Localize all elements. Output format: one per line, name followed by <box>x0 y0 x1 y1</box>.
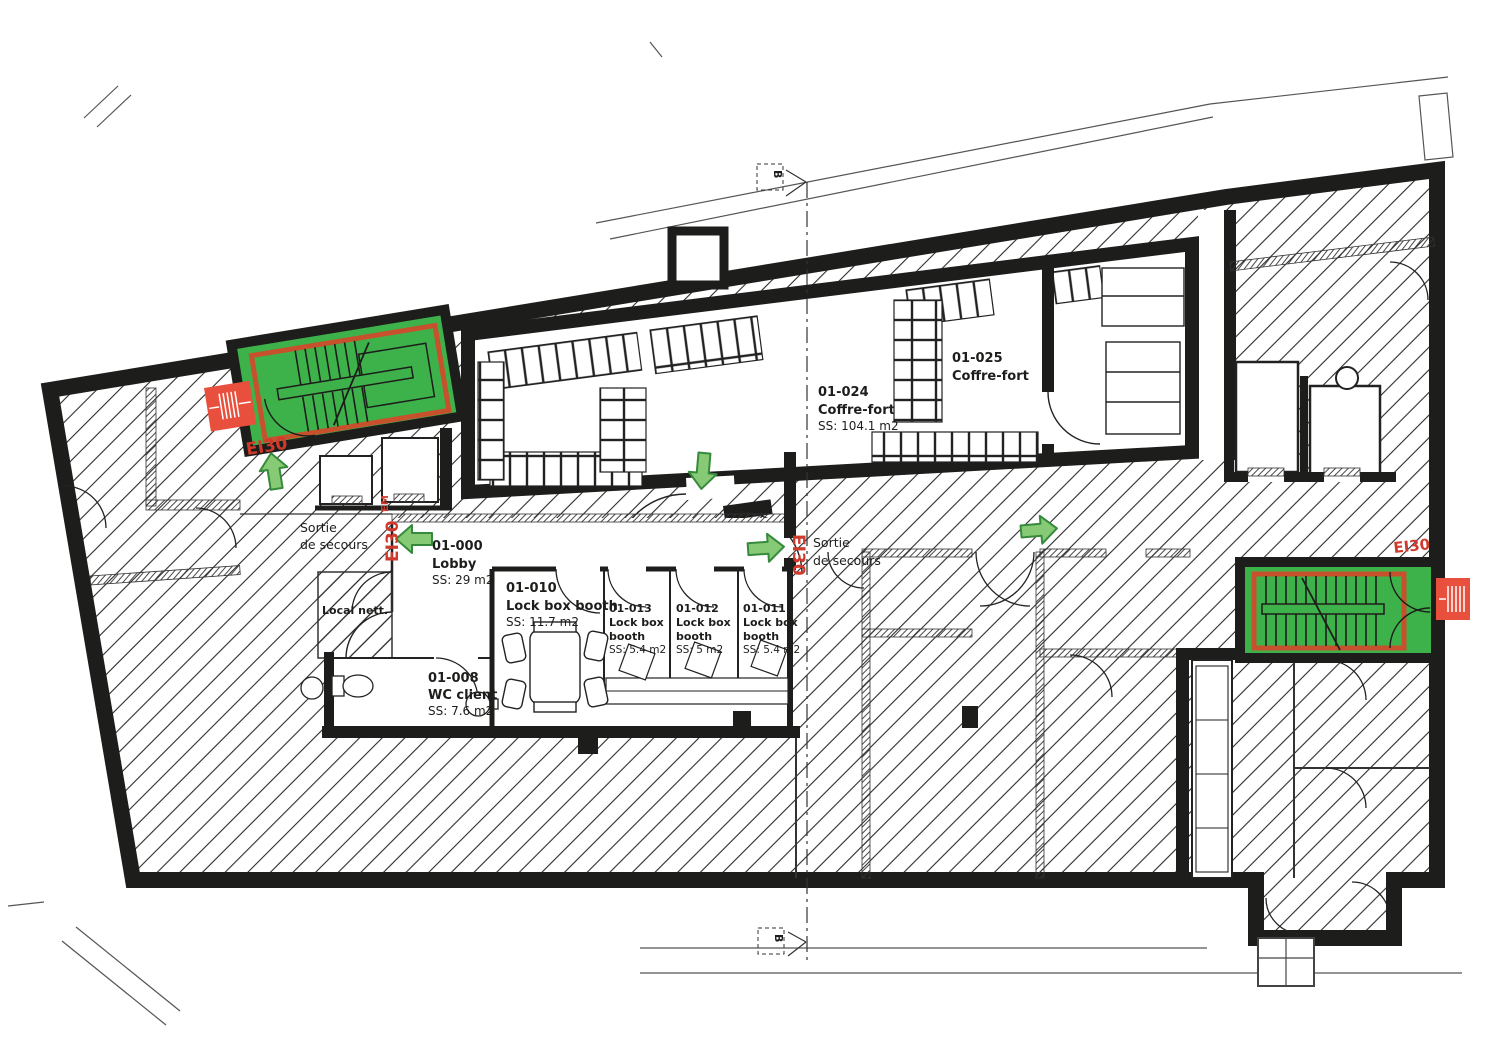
room-name: Lock box booth <box>506 599 618 614</box>
exit-bump <box>1258 938 1314 986</box>
vault-vestibule <box>672 231 724 285</box>
room-area: SS: 104.1 m2 <box>818 419 899 433</box>
exit-label: de secours <box>300 537 368 552</box>
ei30-label: EI30 <box>1393 535 1431 557</box>
lobby-top-wall <box>392 514 788 522</box>
room-name: Coffre-fort <box>952 369 1029 384</box>
room-id: 01-013 <box>609 602 652 615</box>
local-nett-room: Local nett. <box>318 572 392 658</box>
room-name: Coffre-fort <box>818 403 895 418</box>
room-id: 01-024 <box>818 385 869 400</box>
ei30-label: EI30 <box>383 520 403 562</box>
room-id: 01-011 <box>743 602 786 615</box>
room-id: 01-000 <box>432 539 483 554</box>
room-name: Lock box <box>609 616 664 629</box>
room-name: Lock box <box>743 616 798 629</box>
room-area: SS: 29 m2 <box>432 573 494 587</box>
floor-plan-drawing: 01-024 Coffre-fort SS: 104.1 m2 01-025 C… <box>0 0 1500 1061</box>
room-area: SS: 5 m2 <box>676 644 723 656</box>
section-label: B <box>771 170 784 178</box>
room-id: 01-012 <box>676 602 719 615</box>
room-name: Lock box <box>676 616 731 629</box>
closet-strip <box>1192 660 1232 878</box>
vault-shelving <box>1102 268 1184 434</box>
ei30-label: EI30 <box>788 534 808 576</box>
section-marker-b: B <box>757 164 806 196</box>
room-area: SS: 7.6 m2 <box>428 704 493 718</box>
exit-label: de secours <box>813 553 881 568</box>
duct-icon <box>1336 367 1358 389</box>
toilet-icon <box>332 675 373 697</box>
room-name: booth <box>743 630 779 643</box>
room-area: SS: 5.4 m2 <box>609 644 666 656</box>
room-name: WC client <box>428 688 497 703</box>
ei30-em-label: EM <box>380 495 391 512</box>
room-id: 01-025 <box>952 351 1003 366</box>
room-area: SS: 5.4 m2 <box>743 644 800 656</box>
room-name: Lobby <box>432 557 477 572</box>
exit-label: Sortie <box>300 520 337 535</box>
floor-plan-page: 01-024 Coffre-fort SS: 104.1 m2 01-025 C… <box>0 0 1500 1061</box>
fire-equipment-icon <box>204 381 256 432</box>
room-id: 01-010 <box>506 581 557 596</box>
room-name: booth <box>676 630 712 643</box>
room-id: 01-008 <box>428 671 479 686</box>
section-label: B <box>772 934 785 942</box>
section-marker-b: B <box>758 928 806 956</box>
basin-icon <box>301 677 323 699</box>
room-name: Local nett. <box>322 604 388 617</box>
stair-right <box>1240 562 1436 658</box>
exit-label: Sortie <box>813 535 850 550</box>
room-name: booth <box>609 630 645 643</box>
room-area: SS: 11.7 m2 <box>506 615 579 629</box>
fire-equipment-icon <box>1436 578 1470 620</box>
